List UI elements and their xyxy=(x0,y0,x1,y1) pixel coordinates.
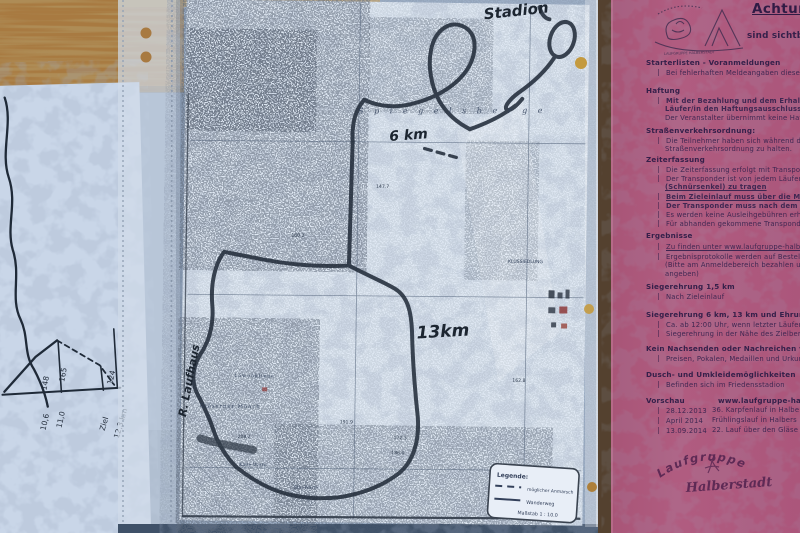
section-line: Die Zeiterfassung erfolgt mit Transponde… xyxy=(658,166,800,174)
vorschau-event: 36. Karpfenlauf in Halbe xyxy=(712,407,799,414)
section-heading: Zeiterfassung xyxy=(646,156,705,164)
visibility-note: sind sichtbar xyxy=(747,32,800,42)
sheet-title: Achtung xyxy=(752,2,800,17)
thirteen-km-label: 13km xyxy=(416,321,470,344)
section-line: Der Transponder muss nach dem Lauf xyxy=(658,202,800,210)
spot-height: 208.2 xyxy=(237,434,250,440)
photo-race-documents: 148 165 124 10,6 11,0 Ziel 12,3 km xyxy=(0,0,800,533)
settlement-label: KLUSSIEDLUNG xyxy=(508,259,544,265)
section-line: Zu finden unter www.laufgruppe-halbe xyxy=(658,243,800,251)
section-heading: Dusch- und Umkleidemöglichkeiten xyxy=(646,371,796,379)
section-line: Befinden sich im Friedensstadion xyxy=(658,381,785,389)
spot-height: 162.8 xyxy=(512,378,525,384)
vorschau-date: 28.12.2013 xyxy=(658,407,707,415)
stie-warte-label: Stie-Warte xyxy=(294,485,319,491)
binder-hole xyxy=(575,57,587,69)
section-line: Nach Zieleinlauf xyxy=(658,293,724,301)
map-legend: Legende: möglicher Anmarsch Wanderweg Ma… xyxy=(487,463,579,523)
vorschau-date: 13.09.2014 xyxy=(658,427,707,435)
ridge-label: S p i e g e l s b e r g e xyxy=(358,106,546,116)
section-line: Straßenverkehrsordnung zu halten. xyxy=(665,146,792,153)
section-heading: Starterlisten - Voranmeldungen xyxy=(646,59,780,67)
spot-height: 147.7 xyxy=(376,184,389,190)
vorschau-event: 22. Lauf über den Gläse xyxy=(712,427,798,434)
kalte-warte-label: Kalte Warte xyxy=(239,462,267,468)
section-heading: Siegerehrung 6 km, 13 km und Ehrung xyxy=(646,311,800,319)
spot-height: 172.3 xyxy=(393,435,406,441)
section-line: Es werden keine Ausleihgebühren erhoben xyxy=(658,211,800,219)
sleeve-hole xyxy=(141,52,152,63)
section-line: Preisen, Pokalen, Medaillen und Urkund xyxy=(658,355,800,363)
section-line: Für abhanden gekommene Transponder xyxy=(658,220,800,228)
red-stamp-mark xyxy=(559,306,567,313)
section-line: Siegerehrung in der Nähe des Zielberei xyxy=(658,330,800,338)
section-line: Bei fehlerhaften Meldeangaben diese im A xyxy=(658,69,800,77)
red-stamp-mark xyxy=(561,323,567,328)
section-heading: Siegerehrung 1,5 km xyxy=(646,283,735,291)
red-stamp-mark xyxy=(262,387,267,391)
sleeve-right-edge xyxy=(585,0,598,527)
spot-height: 160.2 xyxy=(291,233,304,239)
section-line: Läufer/in den Haftungsausschluss an. xyxy=(665,106,800,113)
section-heading: Straßenverkehrsordnung: xyxy=(646,127,755,135)
section-line: Ca. ab 12:00 Uhr, wenn letzter Läufer/ xyxy=(658,321,800,329)
course-map: S p i e g e l s b e r g e KLUSSIEDLUNG G… xyxy=(174,0,589,528)
sleeve-hole xyxy=(141,28,152,39)
kliene-label: Löwenkliene xyxy=(234,373,275,380)
section-heading: Kein Nachsenden oder Nachreichen vo xyxy=(646,345,800,353)
section-line: Der Veranstalter übernimmt keine Haftung… xyxy=(665,115,800,122)
section-line: Beim Zieleinlauf muss über die Messm xyxy=(658,193,800,201)
six-km-label: 6 km xyxy=(389,126,429,145)
section-line: (Schnürsenkel) zu tragen xyxy=(665,184,767,191)
section-line: angeben) xyxy=(665,271,699,278)
moench-label: Gläserner Mönch xyxy=(200,403,261,410)
binder-hole xyxy=(587,482,597,492)
vorschau-website: www.laufgruppe-halber xyxy=(718,397,800,405)
sleeve-punched-strip xyxy=(118,0,180,527)
section-heading: Haftung xyxy=(646,87,680,95)
section-heading-vorschau: Vorschau xyxy=(646,397,685,405)
binder-hole xyxy=(584,304,594,314)
vorschau-date: April 2014 xyxy=(658,417,703,425)
vorschau-event: Frühlingslauf in Halbers xyxy=(712,417,797,424)
spot-height: 186.0 xyxy=(391,450,404,456)
spot-height: 191.9 xyxy=(340,419,353,425)
section-line: (Bitte am Anmeldebereich bezahlen und xyxy=(665,262,800,269)
section-heading: Ergebnisse xyxy=(646,232,693,240)
